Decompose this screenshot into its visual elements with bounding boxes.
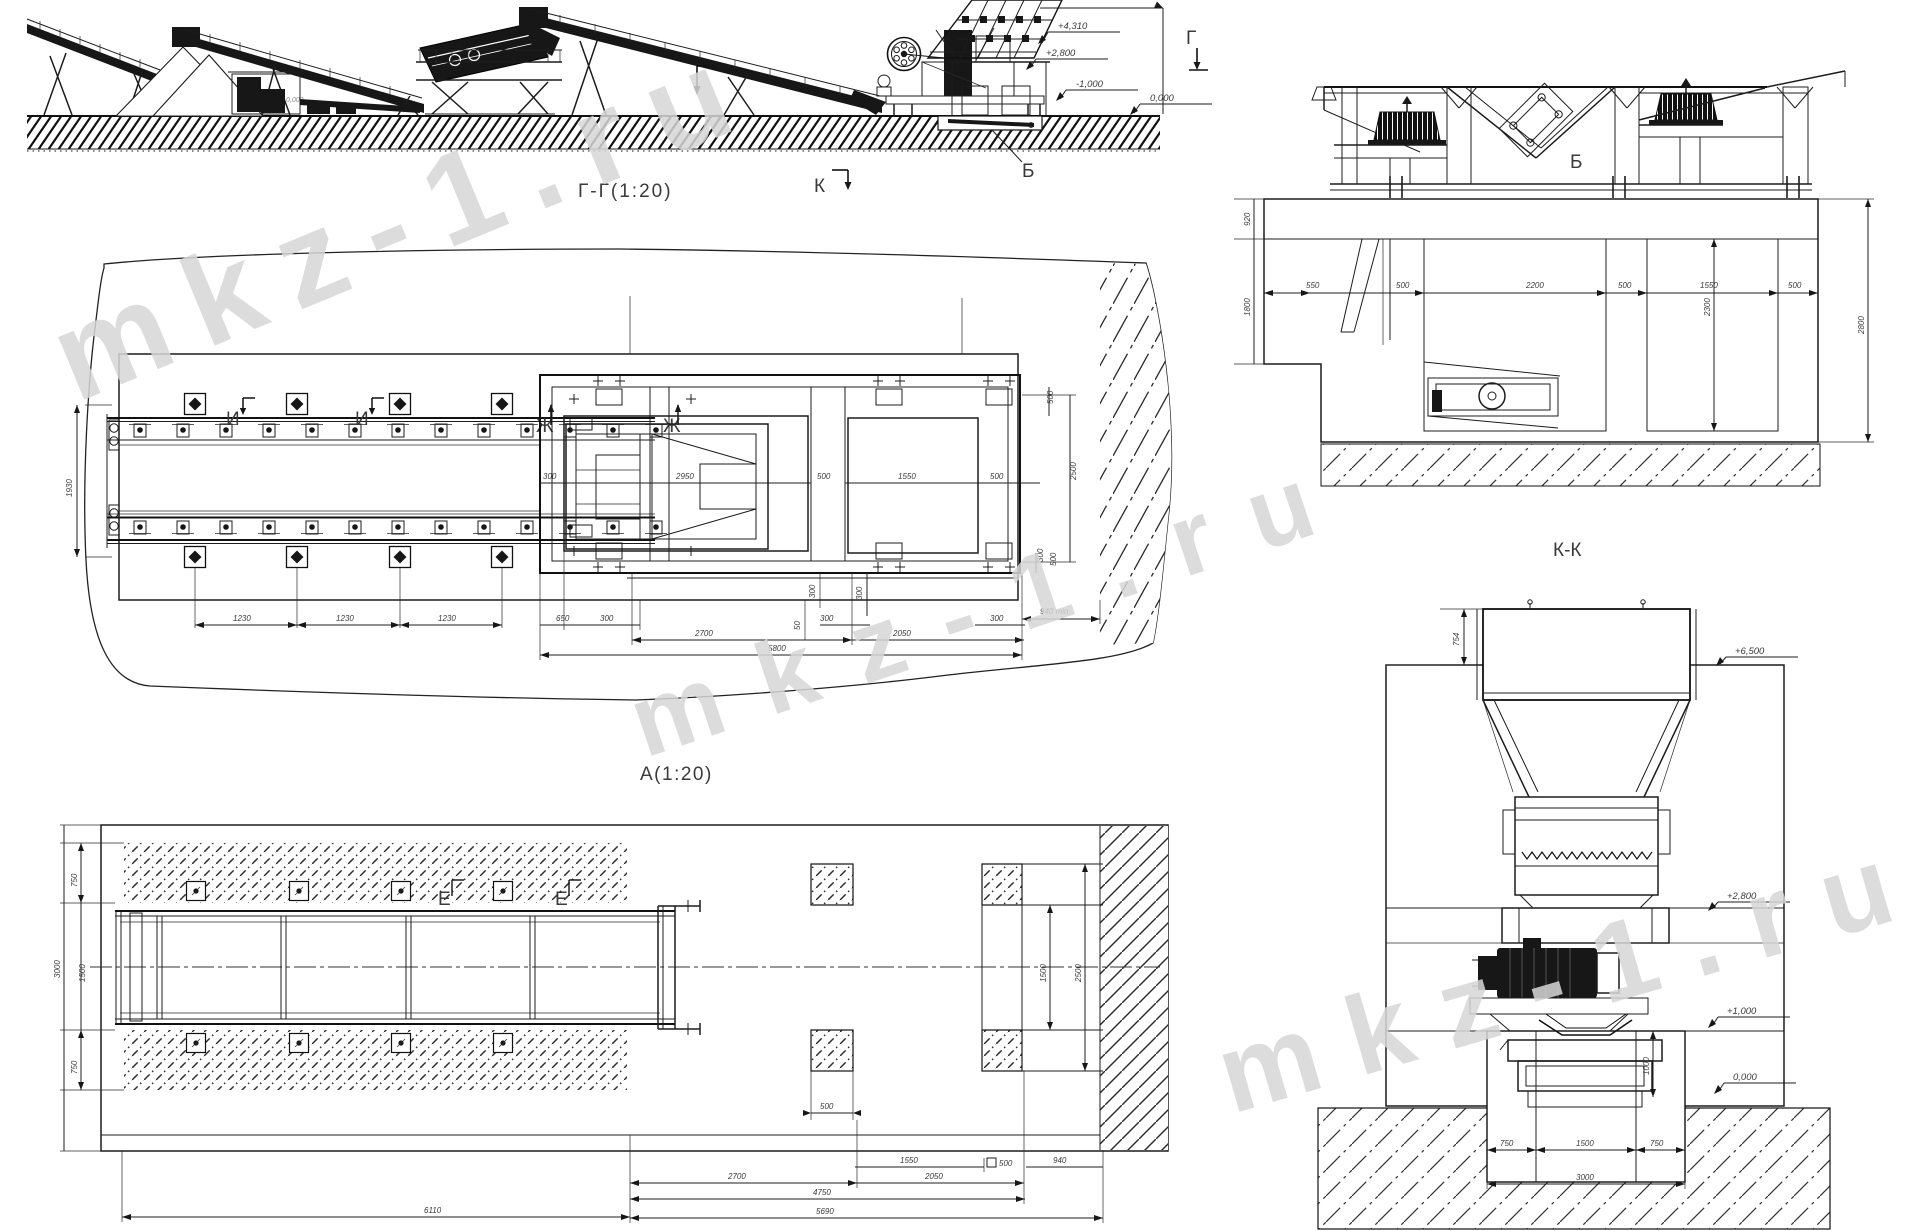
svg-text:1930: 1930 (65, 479, 74, 497)
svg-text:5690: 5690 (816, 1207, 834, 1216)
svg-text:+6,500: +6,500 (1735, 646, 1765, 657)
svg-text:550: 550 (1306, 281, 1320, 290)
svg-text:Е: Е (438, 889, 451, 910)
svg-text:2500: 2500 (1069, 462, 1078, 481)
svg-text:1550: 1550 (1700, 281, 1718, 290)
svg-text:750: 750 (70, 1060, 79, 1074)
svg-text:Е: Е (555, 889, 568, 910)
svg-text:300: 300 (600, 614, 614, 623)
svg-text:300: 300 (990, 614, 1004, 623)
svg-text:1500: 1500 (1039, 964, 1048, 982)
svg-text:1800: 1800 (1243, 298, 1252, 316)
svg-text:500: 500 (1046, 390, 1055, 404)
svg-text:Б: Б (1570, 152, 1582, 173)
svg-text:2300: 2300 (1703, 298, 1712, 317)
svg-text:1230: 1230 (336, 614, 354, 623)
svg-text:2700: 2700 (727, 1172, 746, 1181)
svg-text:300: 300 (543, 472, 557, 481)
svg-text:940: 940 (1053, 1156, 1067, 1165)
svg-text:920: 920 (1243, 212, 1252, 226)
svg-text:500: 500 (817, 472, 831, 481)
svg-text:2050: 2050 (924, 1172, 943, 1181)
svg-text:500: 500 (1788, 281, 1802, 290)
svg-text:3000: 3000 (1576, 1173, 1594, 1182)
svg-text:1550: 1550 (898, 472, 916, 481)
svg-text:К-К: К-К (1553, 540, 1581, 561)
svg-text:+1,000: +1,000 (1727, 1006, 1757, 1017)
svg-text:1230: 1230 (233, 614, 251, 623)
svg-text:500: 500 (999, 1159, 1013, 1168)
svg-text:500: 500 (820, 1102, 834, 1111)
svg-text:3000: 3000 (53, 960, 62, 978)
svg-text:2800: 2800 (1857, 316, 1866, 335)
svg-text:1000: 1000 (1642, 1057, 1651, 1075)
svg-text:1500: 1500 (1576, 1139, 1594, 1148)
svg-text:-1,000: -1,000 (1076, 79, 1104, 90)
svg-text:Г: Г (1186, 28, 1196, 49)
svg-text:К: К (814, 176, 825, 197)
svg-text:500: 500 (1396, 281, 1410, 290)
svg-text:И: И (355, 409, 369, 430)
svg-text:750: 750 (1650, 1139, 1664, 1148)
svg-text:0,000: 0,000 (1733, 1072, 1757, 1083)
svg-text:6110: 6110 (424, 1206, 442, 1215)
svg-text:0,000: 0,000 (1150, 93, 1174, 104)
svg-text:+4,310: +4,310 (1058, 21, 1088, 32)
svg-text:500: 500 (1618, 281, 1632, 290)
svg-text:754: 754 (1452, 632, 1461, 646)
svg-text:1230: 1230 (438, 614, 456, 623)
svg-text:750: 750 (70, 873, 79, 887)
svg-text:2950: 2950 (675, 472, 694, 481)
svg-text:300: 300 (820, 614, 834, 623)
svg-text:500: 500 (990, 472, 1004, 481)
svg-text:650: 650 (556, 614, 570, 623)
svg-text:2200: 2200 (1525, 281, 1544, 290)
svg-text:2700: 2700 (694, 629, 713, 638)
svg-text:2500: 2500 (1074, 964, 1083, 983)
svg-text:Б: Б (1022, 161, 1034, 182)
svg-text:300: 300 (808, 584, 817, 598)
svg-text:И: И (226, 409, 240, 430)
svg-text:4750: 4750 (813, 1188, 831, 1197)
svg-text:750: 750 (1500, 1139, 1514, 1148)
svg-text:+2,800: +2,800 (1046, 48, 1076, 59)
svg-text:1500: 1500 (78, 964, 87, 982)
svg-text:1550: 1550 (900, 1156, 918, 1165)
